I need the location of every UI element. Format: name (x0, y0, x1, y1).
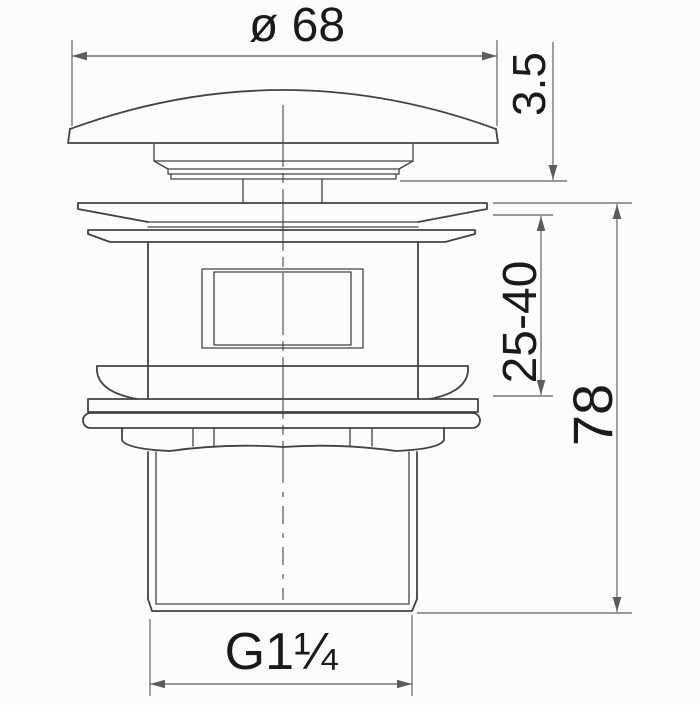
thread-arrow-left (150, 680, 165, 689)
clamping-range-label: 25-40 (494, 261, 547, 384)
drawing-canvas: ø 68 3.5 25-40 78 G1¼ (0, 0, 700, 700)
diameter-label: ø 68 (249, 0, 345, 52)
waste-valve-drawing: ø 68 3.5 25-40 78 G1¼ (0, 0, 700, 700)
thread-size-label: G1¼ (225, 623, 338, 681)
diameter-arrow-left (72, 52, 87, 61)
dimension-labels: ø 68 3.5 25-40 78 G1¼ (225, 0, 624, 681)
gasket-ring (83, 413, 480, 428)
cap-gap-label: 3.5 (503, 52, 555, 116)
diameter-arrow-right (482, 52, 497, 61)
thread-arrow-right (397, 680, 412, 689)
tail-bottom-edge (148, 599, 417, 611)
flange-cone-plate (88, 230, 475, 242)
under-basin-assembly (83, 366, 480, 451)
cap-gap-arrow-down (549, 165, 558, 180)
clamp-arrow-up (537, 216, 546, 231)
height-arrow-up (613, 204, 622, 219)
dimension-diameter (72, 40, 497, 126)
height-arrow-down (613, 597, 622, 612)
total-height-label: 78 (561, 384, 624, 446)
